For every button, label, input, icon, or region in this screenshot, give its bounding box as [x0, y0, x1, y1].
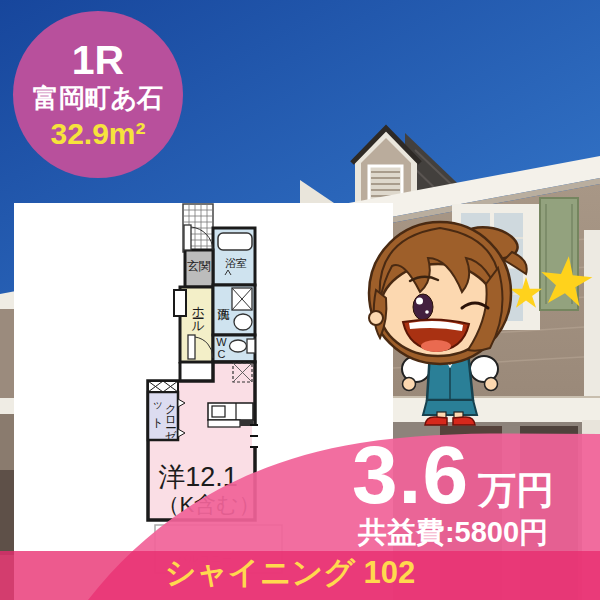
label-bathroom: 浴室 [218, 258, 254, 270]
layout-type: 1R [72, 39, 124, 82]
common-fee: 共益費:5800円 [330, 513, 576, 553]
label-hall: ホール [191, 297, 205, 351]
rental-listing-card[interactable]: 玄関 浴室 ホール 洗面 WC クローゼット 洋12.1 （K含む） バルコニー [0, 0, 600, 600]
floor-area: 32.9m² [50, 117, 145, 150]
location-name: 富岡町あ石 [33, 84, 164, 114]
rent-price: 3.6 万円 [330, 434, 576, 516]
property-name: シャイニング 102 [40, 552, 540, 594]
listing-badge: 1R 富岡町あ石 32.9m² [13, 11, 183, 178]
label-closet: クローゼット [151, 396, 177, 438]
label-main-room-note: （K含む） [154, 493, 264, 516]
label-entrance: 玄関 [185, 260, 213, 273]
rent-amount: 3.6 [352, 434, 469, 516]
label-washroom: 洗面 [217, 299, 230, 331]
label-toilet: WC [215, 336, 227, 364]
label-main-room: 洋12.1 [148, 463, 248, 491]
rent-unit: 万円 [478, 465, 554, 516]
